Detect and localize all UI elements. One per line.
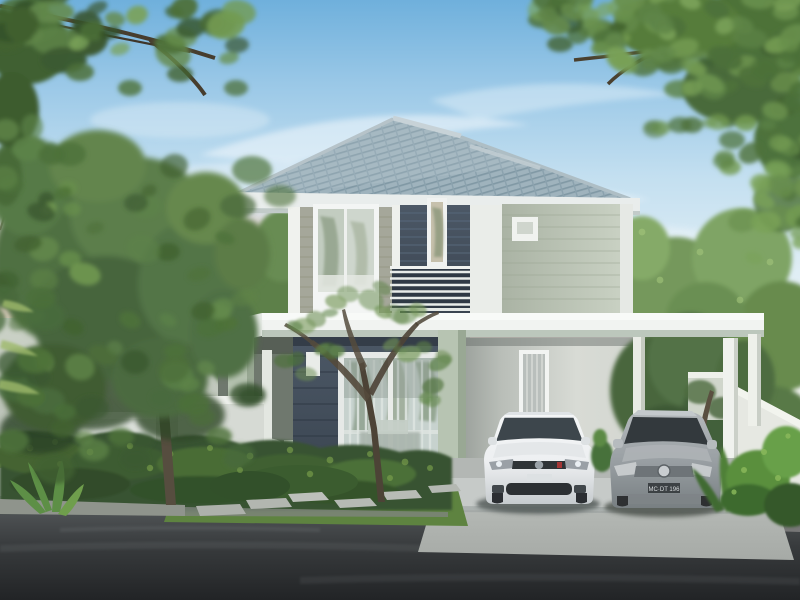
svg-text:MC·DT 196: MC·DT 196 xyxy=(649,487,681,493)
